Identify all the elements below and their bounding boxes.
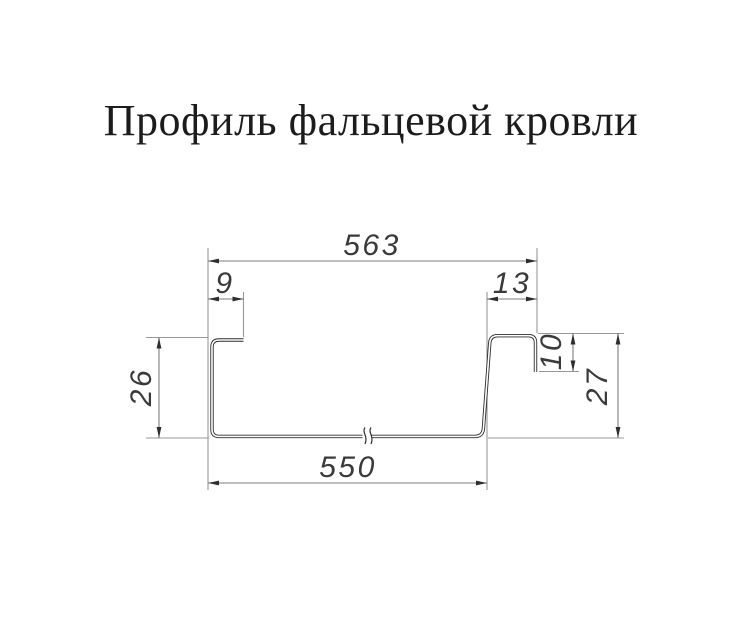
arrow-26-top	[157, 338, 162, 349]
arrow-27-top	[616, 334, 621, 345]
arrow-10-bottom	[571, 361, 576, 372]
dim-label-27: 27	[581, 367, 614, 406]
dim-label-13: 13	[493, 267, 531, 300]
dim-label-10: 10	[535, 332, 568, 370]
dim-label-26: 26	[125, 368, 158, 407]
dim-label-563: 563	[343, 229, 401, 262]
arrow-27-bottom	[616, 427, 621, 438]
arrow-550-right	[476, 481, 487, 486]
arrow-550-left	[208, 481, 219, 486]
technical-drawing: 563 9 13 26 10 27 550	[0, 0, 742, 634]
dim-label-550: 550	[319, 451, 377, 484]
arrow-563-left	[208, 259, 219, 264]
arrow-26-bottom	[157, 427, 162, 438]
break-symbol	[363, 428, 373, 445]
dimension-labels: 563 9 13 26 10 27 550	[125, 229, 614, 484]
dim-label-9: 9	[215, 267, 234, 300]
arrow-563-right	[526, 259, 537, 264]
arrow-10-top	[571, 334, 576, 345]
